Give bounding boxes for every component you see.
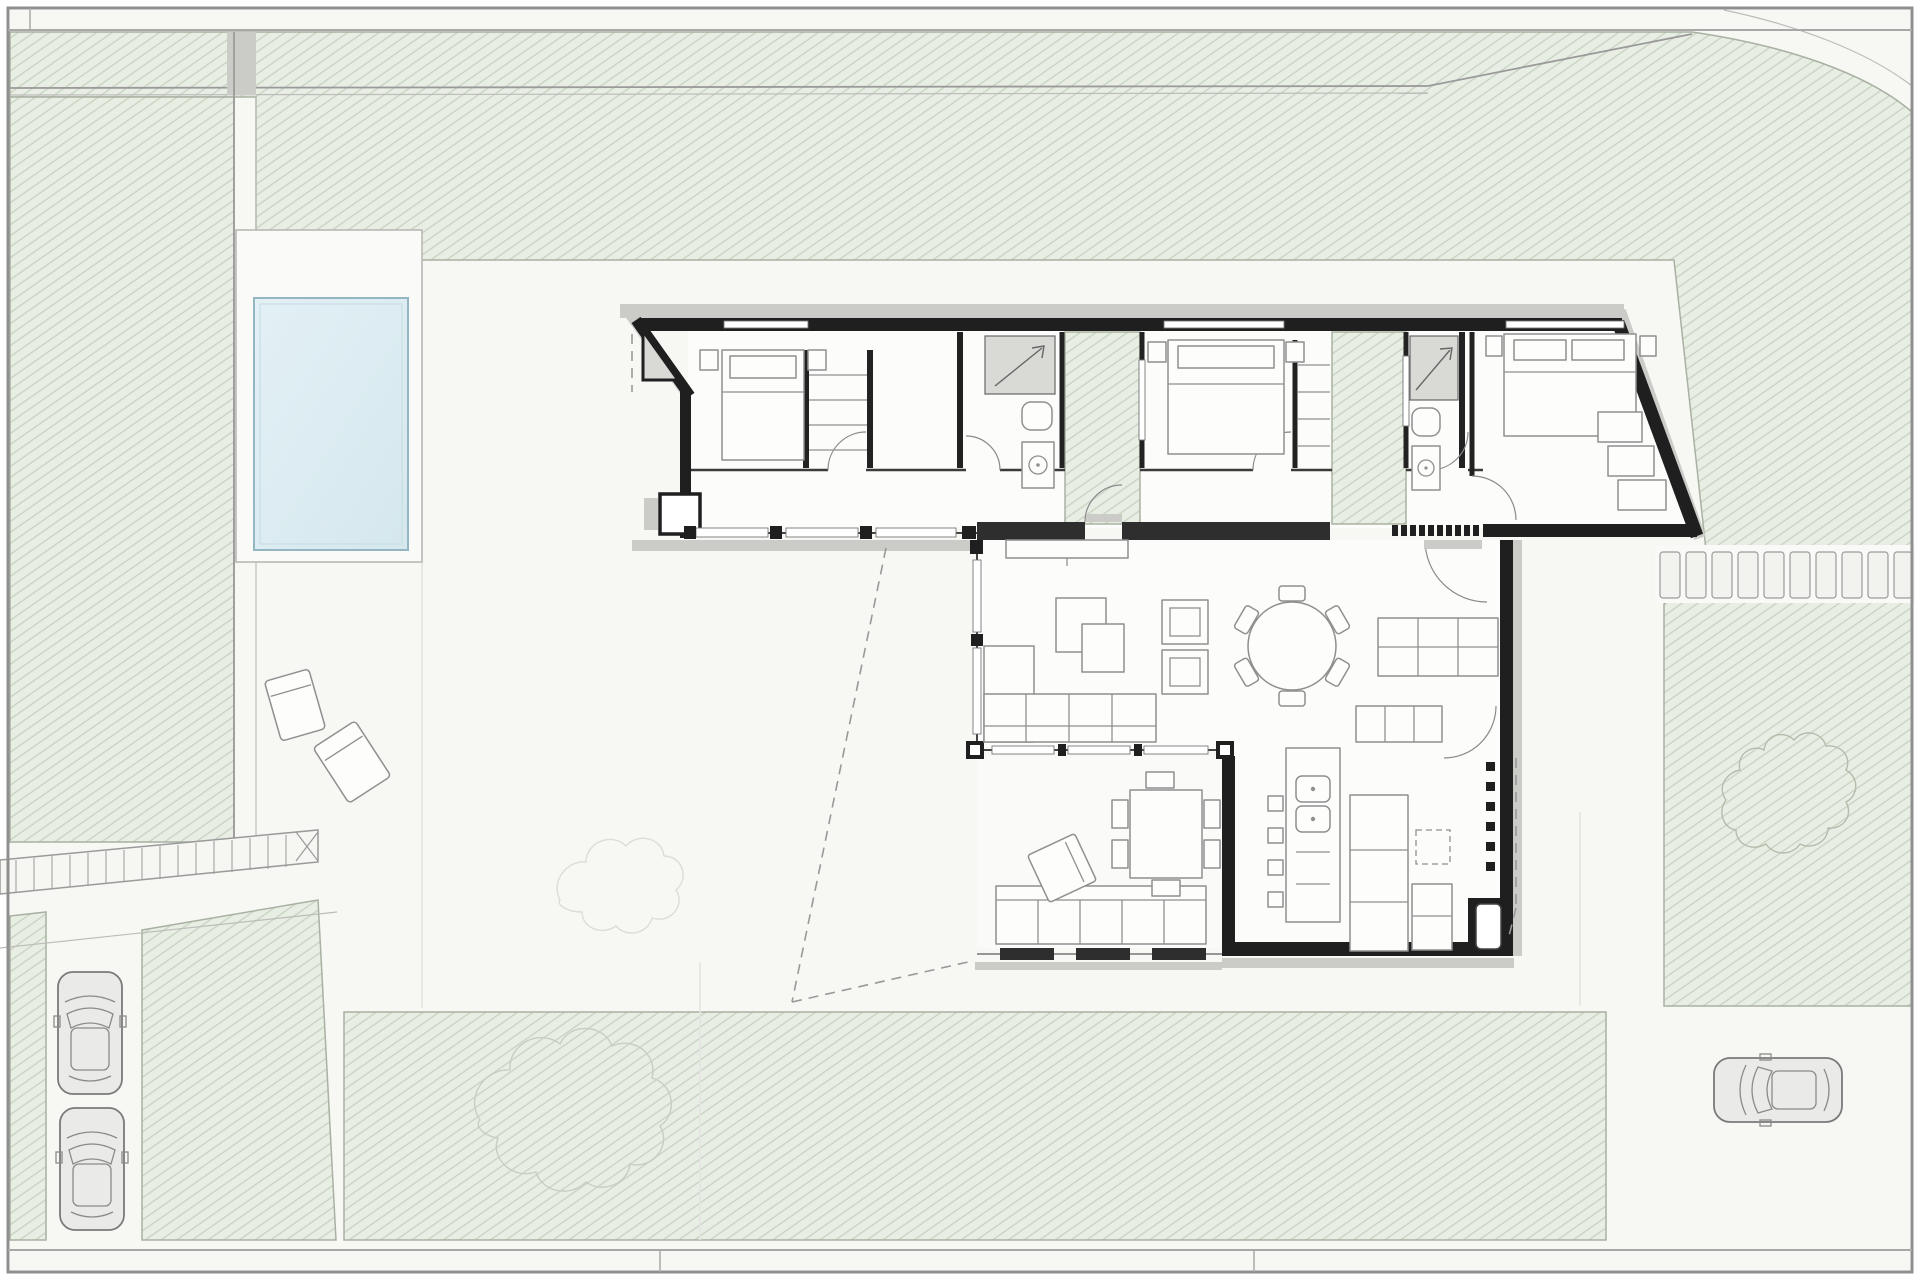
pool-area (236, 230, 422, 562)
toilet-icon (1022, 402, 1052, 430)
pool-water (254, 298, 408, 550)
nightstand-icon (1148, 342, 1166, 362)
terrace-parapet (977, 948, 1222, 960)
tv-bench-icon (1006, 540, 1128, 558)
threshold (1086, 514, 1122, 522)
nightstand-icon (1486, 336, 1502, 356)
nightstand-icon (1640, 336, 1656, 356)
car-icon (1714, 1054, 1842, 1126)
lawn-left-block (10, 97, 234, 842)
patio-2 (1332, 332, 1406, 524)
patio-1 (1065, 332, 1140, 524)
lawn-bottom-band (344, 1012, 1606, 1240)
lawn-wedge-left (10, 912, 46, 1240)
bedroom-2 (1148, 340, 1304, 454)
car-icon (56, 1108, 128, 1230)
kitchen-island-icon (1286, 748, 1340, 922)
nightstand-icon (808, 350, 826, 370)
lawn-patch-driveway (142, 900, 336, 1240)
toilet-icon (1412, 408, 1440, 436)
nightstand-icon (1286, 342, 1304, 362)
entry-niche (1476, 904, 1501, 949)
stepping-stones (1655, 545, 1915, 603)
gate-strip (227, 32, 256, 95)
site-plan-canvas (0, 0, 1920, 1280)
nightstand-icon (700, 350, 718, 370)
corridor-glazing (684, 526, 977, 539)
threshold-entry (1424, 540, 1482, 549)
car-icon (54, 972, 126, 1094)
